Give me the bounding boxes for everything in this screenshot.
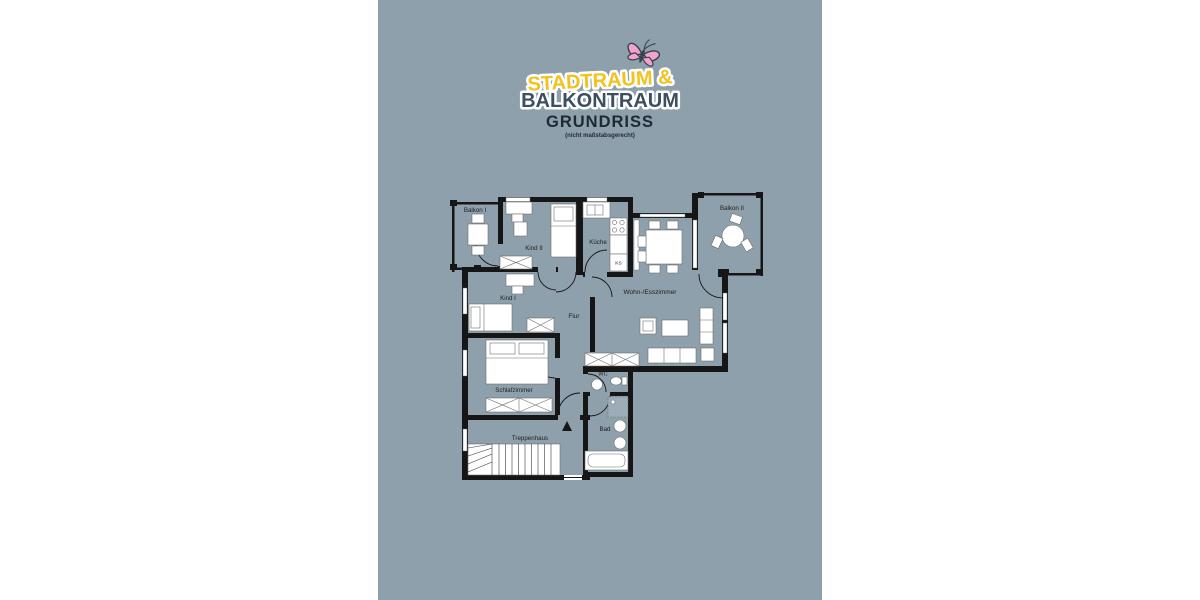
label-bad: Bad — [599, 426, 611, 433]
logo-line2: BALKONTRAUM — [521, 90, 679, 112]
label-ks: KS — [615, 261, 621, 267]
label-wohn-esszimmer: Wohn-/Esszimmer — [624, 289, 678, 296]
branding-header: STADTRAUM & BALKONTRAUM GRUNDRISS (nicht… — [378, 0, 822, 160]
balkon2-furniture — [711, 213, 753, 251]
label-kind2: Kind II — [525, 245, 543, 252]
label-kueche: Küche — [589, 239, 607, 246]
label-balkon2: Balkon II — [720, 205, 744, 212]
label-kind1: Kind I — [500, 295, 516, 302]
label-flur: Flur — [568, 313, 580, 320]
balkon1-furniture — [468, 214, 488, 255]
floorplan-panel: STADTRAUM & BALKONTRAUM GRUNDRISS (nicht… — [378, 0, 822, 600]
kind2-furniture — [500, 202, 576, 269]
floorplan-drawing: Balkon I Kind II Küche KS Wohn-/Esszimme… — [450, 192, 770, 492]
label-balkon1: Balkon I — [464, 207, 487, 214]
label-wc: WC — [598, 372, 607, 378]
schlafzimmer-furniture — [486, 340, 552, 412]
label-schlafzimmer: Schlafzimmer — [495, 387, 532, 394]
wc-fixtures — [592, 377, 628, 390]
stairs — [468, 444, 560, 475]
page-subtitle: (nicht maßstabsgerecht) — [565, 133, 635, 139]
label-treppenhaus: Treppenhaus — [512, 435, 548, 442]
page-title: GRUNDRISS — [546, 113, 654, 131]
entrance-direction-arrow — [562, 421, 572, 431]
butterfly-icon — [624, 34, 663, 68]
